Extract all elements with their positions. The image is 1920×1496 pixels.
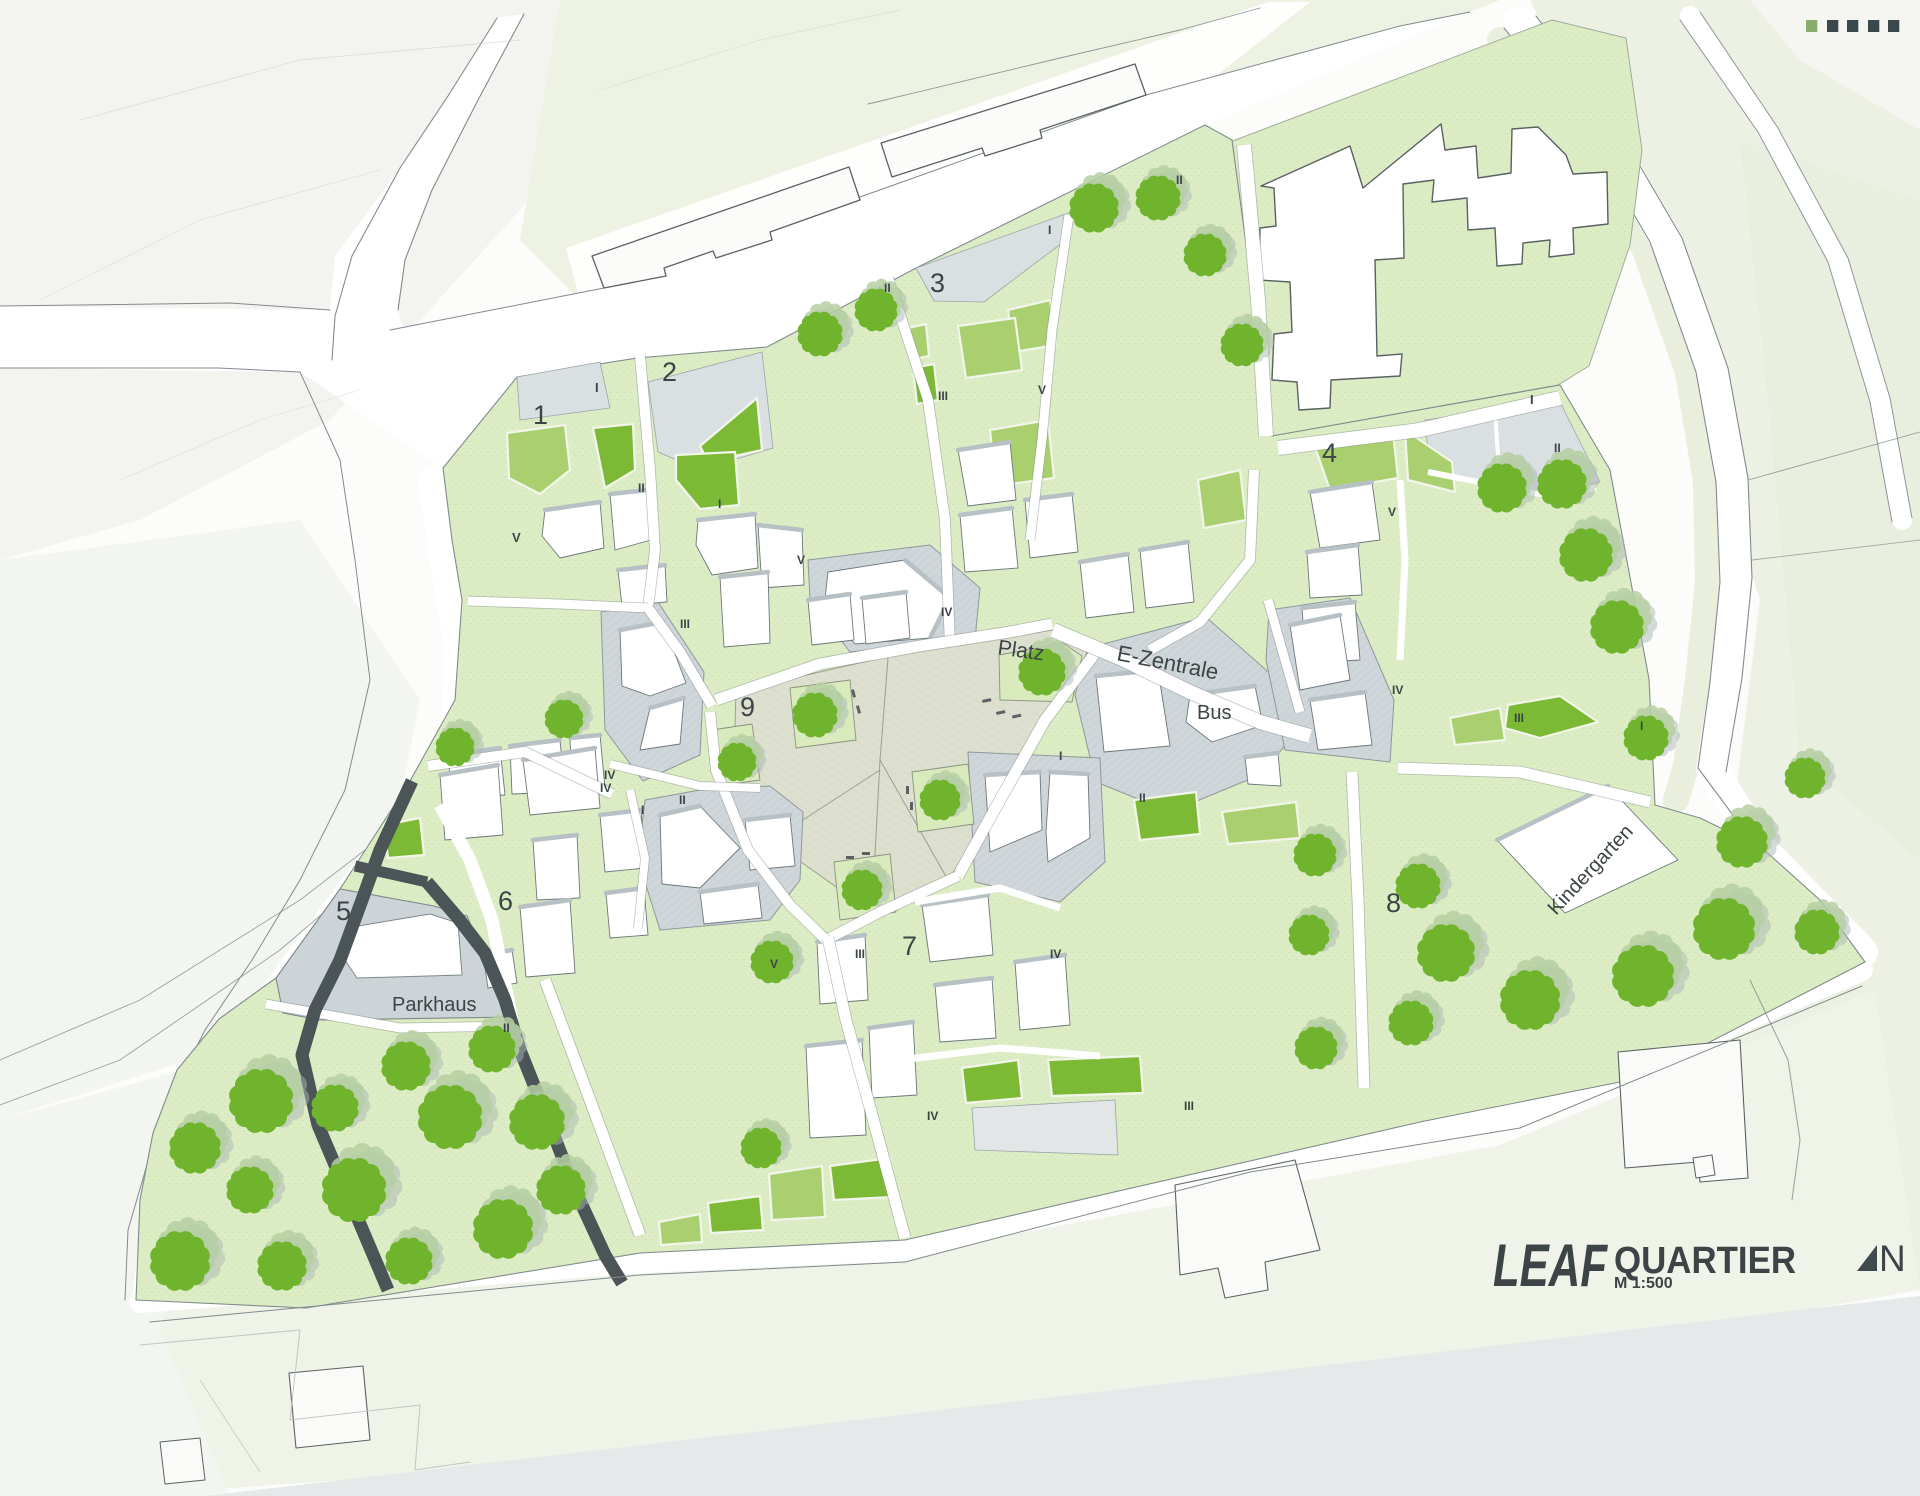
svg-text:II: II (884, 281, 891, 295)
svg-text:III: III (938, 389, 948, 403)
svg-text:II: II (679, 793, 686, 807)
svg-text:I: I (718, 497, 721, 511)
svg-text:M 1:500: M 1:500 (1614, 1275, 1673, 1292)
svg-text:Bus: Bus (1197, 702, 1231, 724)
svg-text:II: II (1139, 791, 1146, 805)
svg-text:I: I (1530, 392, 1534, 407)
svg-text:IV: IV (927, 1109, 938, 1123)
svg-text:5: 5 (336, 896, 351, 926)
svg-text:V: V (512, 530, 521, 545)
svg-text:IV: IV (941, 605, 952, 619)
svg-text:I: I (1059, 749, 1062, 763)
svg-text:4: 4 (1322, 438, 1337, 468)
svg-text:IV: IV (604, 768, 615, 782)
svg-text:II: II (503, 1021, 510, 1035)
svg-text:II: II (1176, 173, 1183, 187)
svg-text:9: 9 (740, 692, 755, 722)
svg-text:IV: IV (600, 781, 611, 795)
svg-text:IV: IV (1050, 947, 1061, 961)
svg-text:8: 8 (1386, 888, 1401, 918)
svg-text:III: III (855, 947, 865, 961)
svg-text:7: 7 (902, 931, 917, 961)
svg-text:Parkhaus: Parkhaus (392, 994, 477, 1016)
svg-text:3: 3 (930, 268, 945, 298)
svg-text:LEAF: LEAF (1493, 1232, 1608, 1299)
svg-text:III: III (680, 617, 690, 631)
svg-text:N: N (1879, 1238, 1906, 1279)
svg-text:II: II (1554, 441, 1561, 455)
svg-text:II: II (638, 481, 645, 495)
svg-text:V: V (770, 957, 778, 971)
svg-text:V: V (1038, 383, 1046, 397)
svg-text:2: 2 (662, 357, 677, 387)
svg-text:1: 1 (533, 400, 548, 430)
svg-text:III: III (1184, 1099, 1194, 1113)
svg-text:I: I (1048, 223, 1051, 237)
svg-text:I: I (1640, 719, 1643, 733)
svg-text:V: V (797, 553, 805, 567)
svg-text:I: I (641, 803, 644, 817)
svg-text:IV: IV (1392, 683, 1403, 697)
svg-text:V: V (1388, 505, 1396, 519)
svg-text:III: III (1514, 711, 1524, 725)
svg-text:6: 6 (498, 886, 513, 916)
svg-text:I: I (595, 380, 599, 395)
